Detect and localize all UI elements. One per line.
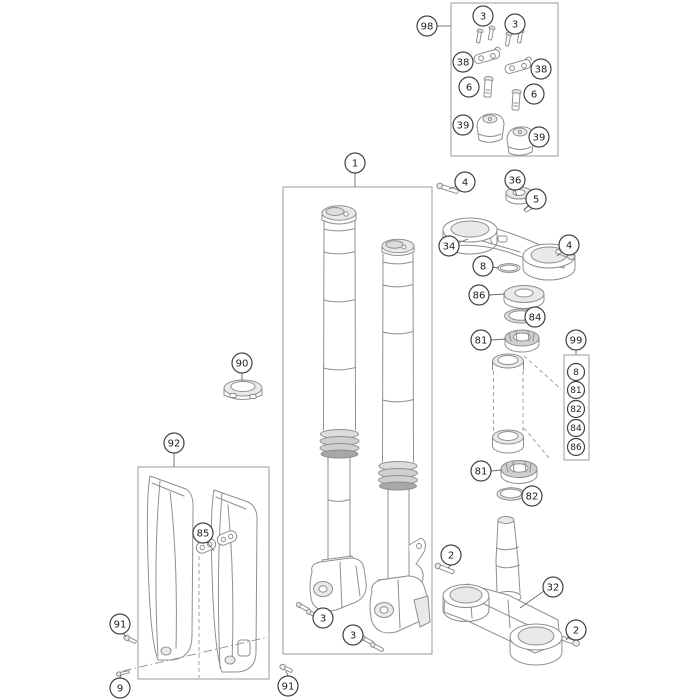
callout-81[interactable]: 81 (471, 461, 491, 481)
svg-text:91: 91 (282, 682, 295, 693)
parts-layer (116, 26, 580, 677)
callout-92[interactable]: 92 (164, 433, 184, 453)
callout-5[interactable]: 5 (526, 189, 546, 209)
callout-2[interactable]: 2 (566, 620, 586, 640)
svg-text:36: 36 (509, 176, 522, 187)
svg-text:3: 3 (320, 614, 326, 625)
callout-4[interactable]: 4 (455, 172, 475, 192)
svg-text:4: 4 (462, 178, 468, 189)
callout-3[interactable]: 3 (343, 625, 363, 645)
seal-ring (497, 488, 525, 500)
svg-text:32: 32 (547, 583, 560, 594)
callout-84[interactable]: 84 (568, 420, 585, 437)
callout-leader-line (491, 470, 502, 471)
svg-text:3: 3 (350, 631, 356, 642)
svg-text:92: 92 (168, 439, 181, 450)
svg-text:84: 84 (529, 313, 542, 324)
callout-6[interactable]: 6 (459, 77, 479, 97)
svg-text:38: 38 (535, 65, 548, 76)
callout-6[interactable]: 6 (524, 84, 544, 104)
callout-leader-line (491, 339, 506, 340)
svg-text:81: 81 (570, 386, 581, 396)
svg-text:91: 91 (114, 620, 127, 631)
bolt-icon (483, 76, 493, 97)
callout-90[interactable]: 90 (232, 353, 252, 373)
callout-82[interactable]: 82 (568, 401, 585, 418)
svg-text:6: 6 (466, 83, 472, 94)
svg-text:81: 81 (475, 467, 488, 478)
svg-text:86: 86 (473, 291, 486, 302)
callout-1[interactable]: 1 (345, 153, 365, 173)
svg-text:6: 6 (531, 90, 537, 101)
screw-icon (116, 670, 130, 677)
callout-8[interactable]: 8 (473, 256, 493, 276)
callout-38[interactable]: 38 (531, 59, 551, 79)
handlebar-clamp-top (504, 57, 534, 75)
fork-leg-left (295, 206, 366, 620)
svg-text:98: 98 (421, 22, 434, 33)
fork-leg-right (359, 239, 430, 652)
callout-82[interactable]: 82 (522, 486, 542, 506)
callout-9[interactable]: 9 (110, 678, 130, 698)
callout-81[interactable]: 81 (471, 330, 491, 350)
screw-icon (475, 29, 483, 44)
callout-3[interactable]: 3 (505, 14, 525, 34)
svg-text:90: 90 (236, 359, 249, 370)
callout-85[interactable]: 85 (193, 523, 213, 543)
bearing (501, 461, 537, 484)
svg-text:86: 86 (570, 443, 582, 453)
callout-34[interactable]: 34 (439, 236, 459, 256)
callout-39[interactable]: 39 (453, 115, 473, 135)
adjuster-ring (224, 380, 262, 400)
callout-3[interactable]: 3 (473, 6, 493, 26)
callout-36[interactable]: 36 (505, 170, 525, 190)
screw-icon (487, 26, 495, 41)
callout-91[interactable]: 91 (110, 614, 130, 634)
callout-32[interactable]: 32 (543, 577, 563, 597)
svg-text:38: 38 (457, 58, 470, 69)
fork-protector-left (147, 476, 193, 660)
callout-86[interactable]: 86 (568, 439, 585, 456)
svg-text:1: 1 (352, 159, 358, 170)
svg-text:39: 39 (533, 133, 546, 144)
callout-leader-line (286, 671, 288, 676)
svg-text:82: 82 (570, 405, 581, 415)
callout-84[interactable]: 84 (525, 307, 545, 327)
svg-text:8: 8 (480, 262, 486, 273)
svg-text:9: 9 (117, 684, 123, 695)
callout-3[interactable]: 3 (313, 608, 333, 628)
svg-text:82: 82 (526, 492, 539, 503)
svg-text:2: 2 (573, 626, 579, 637)
svg-text:34: 34 (443, 242, 456, 253)
svg-text:99: 99 (570, 336, 583, 347)
callout-4[interactable]: 4 (559, 235, 579, 255)
callout-8[interactable]: 8 (568, 364, 585, 381)
svg-text:85: 85 (197, 529, 210, 540)
callout-86[interactable]: 86 (469, 285, 489, 305)
fork-protector-right (211, 490, 257, 672)
steering-head-tube (493, 354, 524, 453)
callout-99[interactable]: 99 (566, 330, 586, 350)
handlebar-clamp-bottom (477, 114, 504, 142)
screw-icon (369, 642, 384, 653)
parts-diagram: 9833383866393914365344886848199881828486… (0, 0, 700, 700)
callout-91[interactable]: 91 (278, 676, 298, 696)
bearing (505, 330, 539, 352)
upper-triple-clamp (436, 182, 575, 280)
callout-38[interactable]: 38 (453, 52, 473, 72)
callout-98[interactable]: 98 (417, 16, 437, 36)
o-ring (498, 264, 520, 273)
callout-leader-line (520, 591, 544, 608)
callout-2[interactable]: 2 (441, 545, 461, 565)
dust-cover (504, 286, 544, 309)
projection-dashed-line (524, 428, 549, 458)
svg-text:3: 3 (512, 20, 518, 31)
screw-icon (504, 32, 512, 47)
diagram-canvas: 9833383866393914365344886848199881828486… (0, 0, 700, 700)
svg-text:8: 8 (573, 368, 579, 378)
callout-39[interactable]: 39 (529, 127, 549, 147)
svg-text:81: 81 (475, 336, 488, 347)
svg-text:84: 84 (570, 424, 582, 434)
svg-text:5: 5 (533, 195, 539, 206)
svg-text:3: 3 (480, 12, 486, 23)
svg-text:2: 2 (448, 551, 454, 562)
handlebar-clamp-top (473, 47, 503, 65)
bolt-icon (511, 89, 521, 110)
callout-81[interactable]: 81 (568, 382, 585, 399)
callout-leader-line (489, 294, 505, 295)
projection-dashed-line (524, 356, 561, 389)
svg-text:4: 4 (566, 241, 572, 252)
svg-text:39: 39 (457, 121, 470, 132)
